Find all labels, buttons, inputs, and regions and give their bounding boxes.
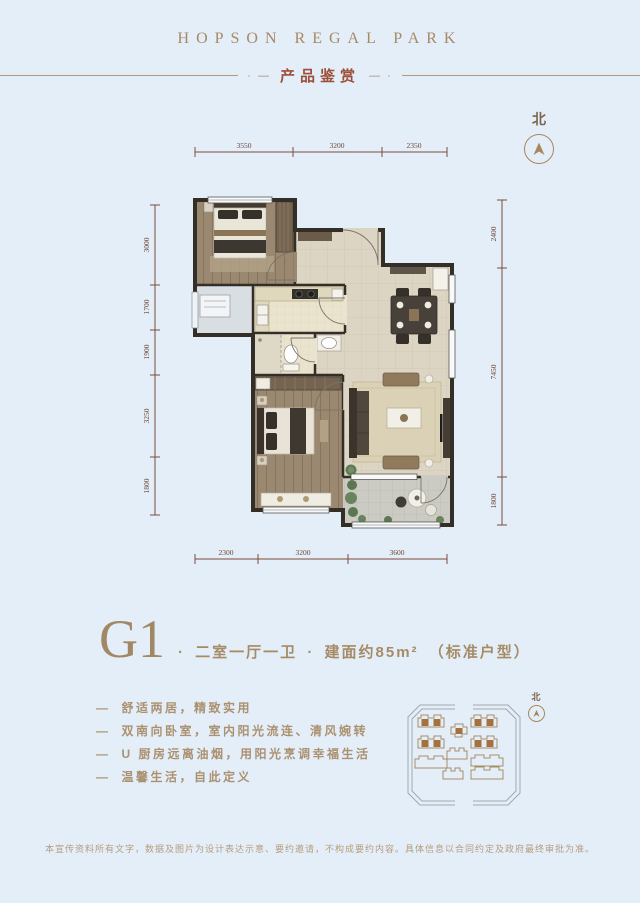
site-north-arrow-icon [528,705,545,722]
feature-text: 舒适两居，精致实用 [122,701,253,716]
section-header: · — 产品鉴赏 — · [0,65,640,86]
svg-text:1800: 1800 [489,493,498,508]
unit-area: 建面约85m² [325,644,419,661]
dash-bullet: — [96,770,111,785]
dash-bullet: — [96,747,111,762]
feature-text: 双南向卧室，室内阳光流连、清风婉转 [122,724,369,739]
svg-text:3200: 3200 [296,548,311,557]
section-title: 产品鉴赏 [280,65,360,86]
feature-item: — 舒适两居，精致实用 [96,701,371,716]
north-arrow-icon [524,134,554,164]
svg-text:3550: 3550 [237,141,252,150]
floor-plan: 3550 3200 2350 3000 1700 1900 3250 1800 … [140,130,520,570]
svg-text:2300: 2300 [219,548,234,557]
unit-note: （标准户型） [429,644,531,661]
feature-text: 温馨生活，自此定义 [122,770,253,785]
feature-text: U 厨房远离油烟，用阳光烹调幸福生活 [122,747,371,762]
brand-title: HOPSON REGAL PARK [0,30,640,48]
decor-mark-right: — · [369,70,393,82]
unit-layout: 二室一厅一卫 [195,644,297,661]
decor-line-right [402,75,640,76]
separator-dot: · [307,644,314,661]
dash-bullet: — [96,724,111,739]
svg-text:3000: 3000 [142,237,151,252]
svg-text:1900: 1900 [142,344,151,359]
dash-bullet: — [96,701,111,716]
unit-description: · 二室一厅一卫 · 建面约85m² （标准户型） [176,641,533,662]
footer-disclaimer: 本宣传资料所有文字，数据及图片为设计表达示意、要约邀请，不构成要约内容。具体信息… [0,842,640,855]
svg-text:2350: 2350 [407,141,422,150]
north-compass: 北 [517,109,561,164]
feature-list: — 舒适两居，精致实用 — 双南向卧室，室内阳光流连、清风婉转 — U 厨房远离… [96,701,371,793]
decor-line-left [0,75,238,76]
svg-text:3250: 3250 [142,408,151,423]
separator-dot: · [178,644,185,661]
site-key-plan [403,696,525,814]
feature-item: — 温馨生活，自此定义 [96,770,371,785]
brochure-page: HOPSON REGAL PARK · — 产品鉴赏 — · 北 [0,0,640,903]
north-label: 北 [517,109,561,129]
svg-text:1700: 1700 [142,299,151,314]
svg-text:3600: 3600 [390,548,405,557]
feature-item: — U 厨房远离油烟，用阳光烹调幸福生活 [96,747,371,762]
unit-title: G1 · 二室一厅一卫 · 建面约85m² （标准户型） [99,612,533,666]
feature-item: — 双南向卧室，室内阳光流连、清风婉转 [96,724,371,739]
decor-mark-left: · — [247,70,271,82]
site-buildings [415,715,503,779]
site-north-label: 北 [526,690,546,703]
svg-text:1800: 1800 [142,478,151,493]
unit-code: G1 [99,612,165,666]
svg-text:7450: 7450 [489,364,498,379]
site-north-compass: 北 [526,690,546,722]
svg-text:2400: 2400 [489,226,498,241]
svg-text:3200: 3200 [330,141,345,150]
